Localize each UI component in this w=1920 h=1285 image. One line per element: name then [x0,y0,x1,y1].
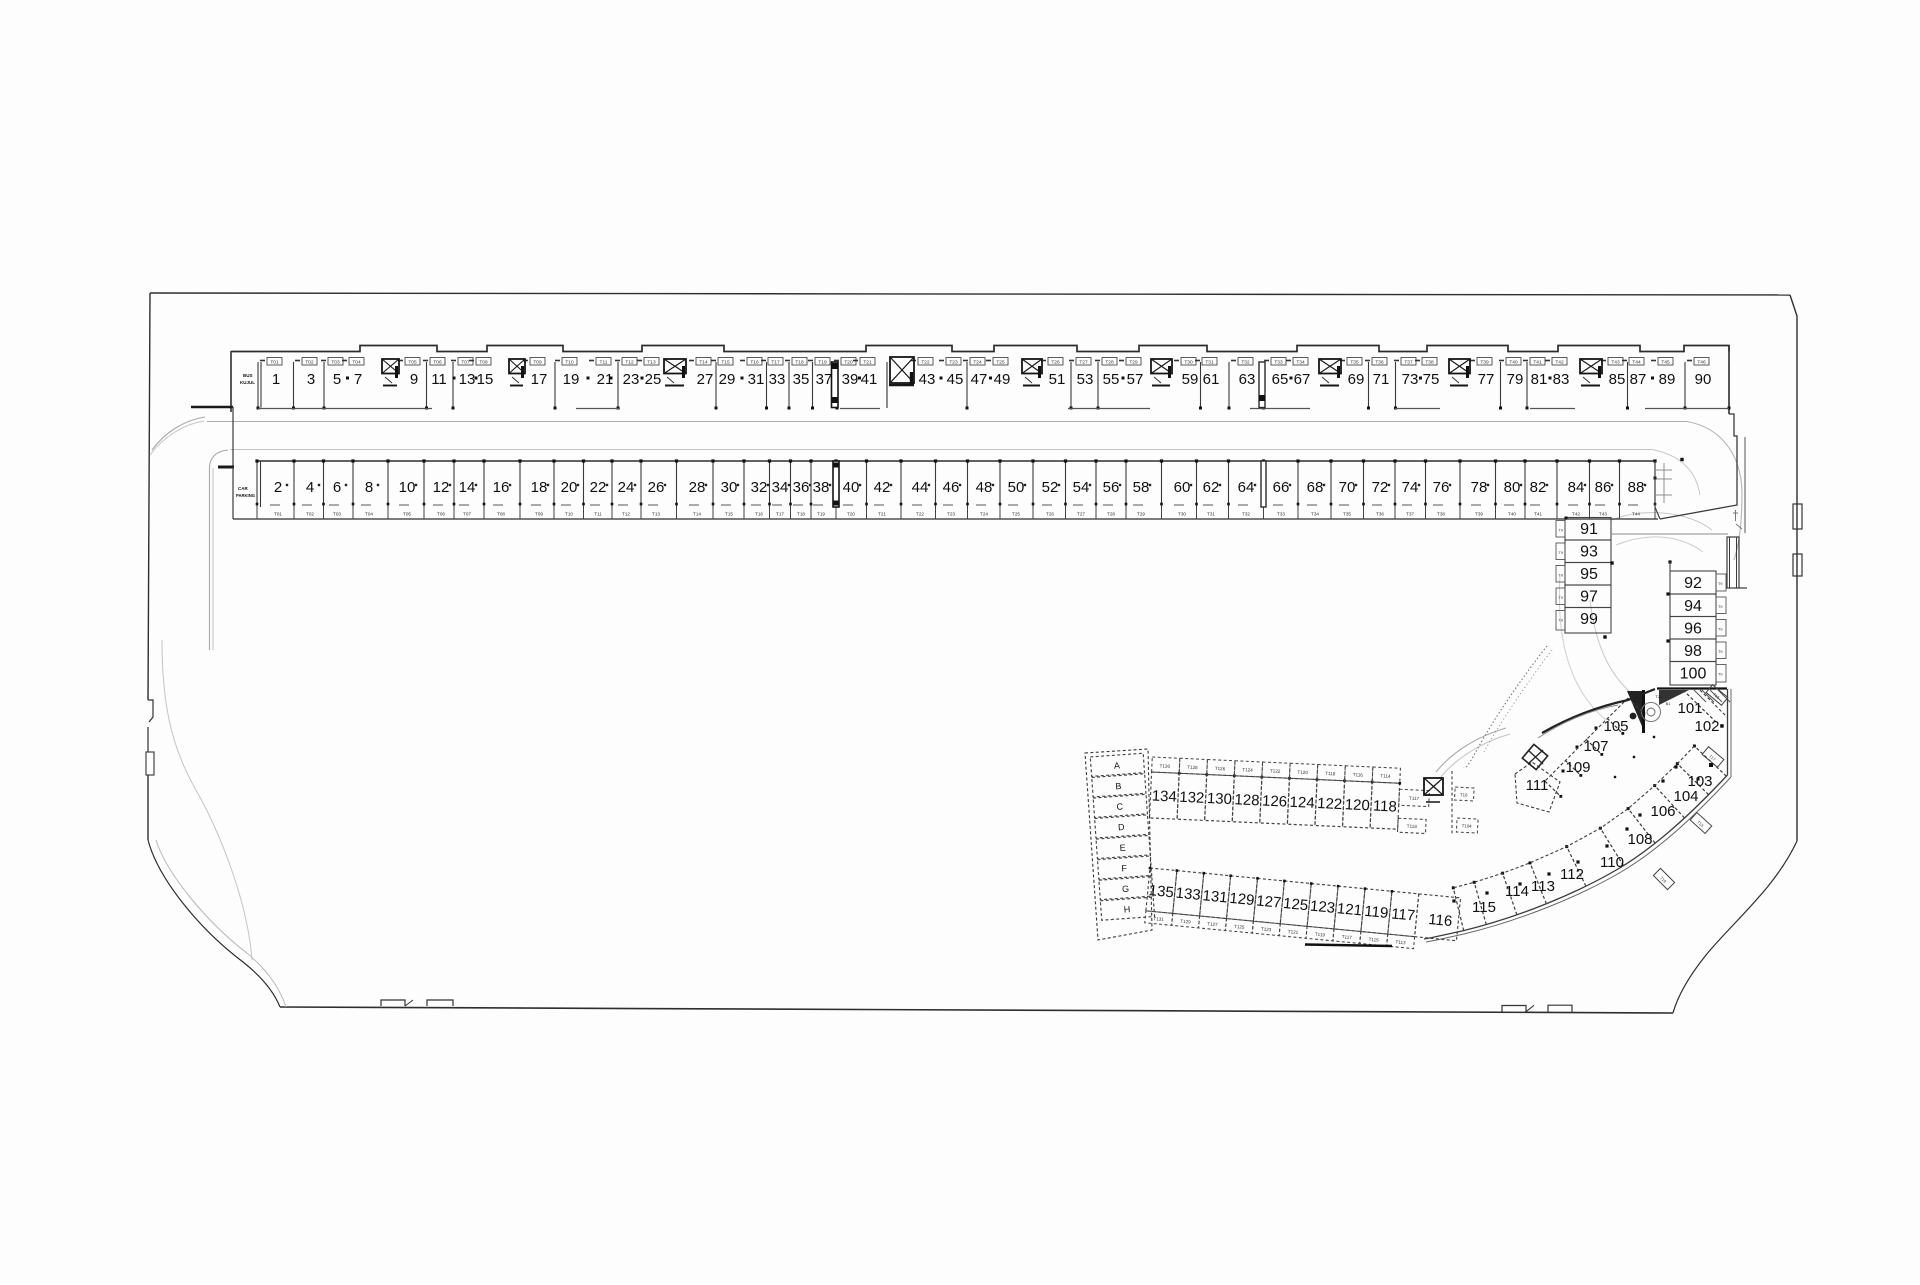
svg-text:30: 30 [721,479,738,496]
svg-text:112: 112 [1560,866,1584,883]
svg-text:96: 96 [1684,621,1702,638]
svg-text:22: 22 [590,479,607,496]
svg-text:65: 65 [1272,371,1289,388]
svg-text:T09: T09 [533,360,542,366]
svg-text:20: 20 [561,479,578,496]
svg-text:117: 117 [1390,905,1415,924]
svg-text:T40: T40 [1509,360,1518,366]
svg-text:T28: T28 [1107,512,1115,517]
svg-text:T03: T03 [333,512,341,517]
svg-text:T35: T35 [1343,512,1351,517]
svg-text:108: 108 [1627,831,1652,848]
svg-text:109: 109 [1565,759,1590,776]
svg-text:53: 53 [1077,371,1094,388]
svg-text:35: 35 [793,371,810,388]
svg-text:11: 11 [431,371,447,388]
svg-text:19: 19 [563,371,580,388]
svg-text:T43: T43 [1599,512,1607,517]
svg-text:T117: T117 [1409,796,1420,801]
svg-text:T06: T06 [437,512,445,517]
svg-text:T9: T9 [1559,529,1563,533]
svg-text:T39: T39 [1480,360,1489,366]
svg-text:94: 94 [1684,598,1702,615]
svg-text:T34: T34 [1296,360,1305,366]
svg-text:70: 70 [1339,479,1356,496]
svg-text:T28: T28 [1105,360,1114,366]
svg-text:59: 59 [1182,371,1199,388]
svg-text:T113: T113 [1395,939,1406,945]
svg-text:T37: T37 [1406,512,1414,517]
svg-text:T124: T124 [1242,767,1253,772]
svg-text:34: 34 [772,479,789,496]
svg-text:T116: T116 [1353,772,1364,777]
svg-text:68: 68 [1307,479,1324,496]
svg-text:T23: T23 [947,512,955,517]
svg-text:79: 79 [1507,371,1524,388]
svg-text:T45: T45 [1661,360,1670,366]
svg-text:26: 26 [648,479,665,496]
svg-text:74: 74 [1402,479,1419,496]
svg-text:48: 48 [976,479,993,496]
svg-text:44: 44 [912,479,929,496]
svg-text:T115: T115 [1368,937,1379,943]
svg-text:76: 76 [1433,479,1450,496]
svg-text:97: 97 [1580,589,1598,606]
svg-text:T122: T122 [1270,768,1281,773]
svg-text:88: 88 [1628,479,1645,496]
svg-text:T12: T12 [622,512,630,517]
svg-text:57: 57 [1127,371,1144,388]
svg-text:T114: T114 [1380,773,1391,778]
svg-text:T13: T13 [652,512,660,517]
svg-text:54: 54 [1073,479,1090,496]
svg-text:100: 100 [1680,666,1707,683]
svg-text:T32: T32 [1242,512,1250,517]
svg-text:90: 90 [1695,371,1712,388]
svg-text:4: 4 [306,479,314,496]
svg-text:T05: T05 [403,512,411,517]
svg-text:115: 115 [1472,899,1496,916]
svg-text:T29: T29 [1137,512,1145,517]
svg-text:T19: T19 [818,360,827,366]
svg-text:122: 122 [1317,795,1343,813]
svg-text:27: 27 [697,371,714,388]
svg-text:9: 9 [410,371,418,388]
svg-text:T9: T9 [1718,673,1722,677]
svg-text:T14: T14 [693,512,701,517]
svg-text:98: 98 [1684,643,1702,660]
svg-text:72: 72 [1372,479,1389,496]
svg-text:T04: T04 [365,512,373,517]
svg-text:T39: T39 [1475,512,1483,517]
svg-text:16: 16 [493,479,510,496]
svg-text:T37: T37 [1404,360,1413,366]
svg-text:47: 47 [971,371,988,388]
svg-text:CAR: CAR [238,486,248,491]
svg-text:T10: T10 [565,512,573,517]
svg-text:T130: T130 [1160,763,1171,768]
svg-text:T13: T13 [647,360,656,366]
svg-text:T04: T04 [352,360,361,366]
svg-text:1: 1 [272,371,280,388]
svg-text:T33: T33 [1274,360,1283,366]
svg-text:T25: T25 [1012,512,1020,517]
svg-text:135: 135 [1148,882,1175,901]
svg-text:95: 95 [1580,566,1598,583]
svg-text:T9: T9 [1718,628,1722,632]
svg-text:T26: T26 [1046,512,1054,517]
svg-text:102: 102 [1694,718,1719,735]
svg-text:36: 36 [793,479,810,496]
svg-text:41: 41 [861,371,878,388]
svg-text:B: B [1115,781,1122,791]
svg-text:58: 58 [1133,479,1150,496]
svg-text:17: 17 [531,371,548,388]
svg-text:69: 69 [1348,371,1365,388]
svg-text:T31: T31 [1205,360,1214,366]
svg-text:24: 24 [618,479,635,496]
svg-text:37: 37 [816,371,833,388]
svg-text:B1: B1 [1666,702,1671,706]
svg-text:86: 86 [1595,479,1612,496]
svg-text:T03: T03 [331,360,340,366]
svg-text:13: 13 [459,371,476,388]
svg-text:T35: T35 [1350,360,1359,366]
svg-text:T07: T07 [461,360,470,366]
svg-text:91: 91 [1580,521,1598,538]
svg-text:116: 116 [1428,911,1453,930]
svg-text:T44: T44 [1632,512,1640,517]
svg-text:61: 61 [1203,371,1220,388]
svg-text:62: 62 [1203,479,1220,496]
svg-text:T43: T43 [1611,360,1620,366]
svg-text:63: 63 [1239,371,1256,388]
svg-text:T20: T20 [844,360,853,366]
svg-text:T11: T11 [600,360,608,366]
svg-text:80: 80 [1504,479,1521,496]
svg-text:127: 127 [1256,892,1283,911]
svg-text:T18: T18 [797,512,805,517]
svg-text:64: 64 [1238,479,1255,496]
svg-text:T21: T21 [878,512,886,517]
svg-text:T104: T104 [1462,823,1473,829]
svg-text:T41: T41 [1534,512,1542,517]
svg-text:T34: T34 [1311,512,1319,517]
svg-text:T12: T12 [625,360,634,366]
svg-text:121: 121 [1336,900,1363,919]
svg-text:40: 40 [843,479,860,496]
svg-text:T9: T9 [1559,596,1563,600]
svg-text:14: 14 [459,479,476,496]
svg-text:18: 18 [531,479,548,496]
svg-text:23: 23 [623,371,640,388]
svg-text:T08: T08 [479,360,488,366]
svg-text:15: 15 [477,371,494,388]
svg-text:T16: T16 [1460,792,1468,797]
svg-text:T129: T129 [1180,919,1191,925]
svg-text:107: 107 [1583,738,1608,755]
svg-text:56: 56 [1103,479,1120,496]
svg-text:89: 89 [1659,371,1676,388]
svg-text:132: 132 [1179,789,1205,807]
svg-text:T9: T9 [1718,582,1722,586]
svg-text:73: 73 [1402,371,1419,388]
svg-text:60: 60 [1174,479,1191,496]
svg-text:83: 83 [1553,371,1570,388]
svg-text:32: 32 [751,479,768,496]
svg-text:120: 120 [1344,796,1370,814]
svg-text:BUS: BUS [243,373,253,378]
svg-text:T38: T38 [1437,512,1445,517]
svg-text:T05: T05 [408,360,417,366]
svg-text:T131: T131 [1153,916,1164,922]
svg-text:T26: T26 [1051,360,1060,366]
svg-text:66: 66 [1273,479,1290,496]
svg-text:42: 42 [874,479,891,496]
svg-text:5: 5 [333,371,341,388]
svg-text:T18: T18 [795,360,804,366]
svg-text:T11: T11 [594,512,602,517]
svg-text:H: H [1123,904,1130,914]
svg-text:126: 126 [1262,793,1288,811]
svg-text:119: 119 [1364,903,1389,922]
svg-text:T42: T42 [1572,512,1580,517]
svg-text:T117: T117 [1341,934,1352,940]
svg-text:T21: T21 [863,360,872,366]
svg-text:6: 6 [333,479,341,496]
svg-text:T08: T08 [497,512,505,517]
svg-text:46: 46 [943,479,960,496]
svg-text:105: 105 [1603,718,1628,735]
svg-text:T9: T9 [1559,574,1563,578]
svg-text:T118: T118 [1407,824,1418,829]
svg-text:T125: T125 [1234,924,1245,930]
svg-text:T42: T42 [1555,360,1564,366]
svg-text:52: 52 [1042,479,1059,496]
svg-text:75: 75 [1423,371,1440,388]
svg-text:T128: T128 [1187,765,1198,770]
svg-text:123: 123 [1309,898,1336,917]
svg-text:101: 101 [1677,700,1702,717]
svg-text:T24: T24 [980,512,988,517]
svg-text:114: 114 [1505,883,1529,900]
svg-text:T29: T29 [1129,360,1138,366]
svg-text:T120: T120 [1297,770,1308,775]
svg-text:67: 67 [1294,371,1311,388]
svg-text:T31: T31 [1207,512,1215,517]
svg-text:T02: T02 [305,360,314,366]
svg-text:C: C [1116,801,1124,811]
svg-text:T9: T9 [1718,605,1722,609]
svg-text:T15: T15 [725,512,733,517]
svg-text:124: 124 [1289,794,1315,812]
svg-text:128: 128 [1234,791,1260,809]
svg-text:3: 3 [307,371,315,388]
svg-text:125: 125 [1282,895,1309,914]
svg-text:T123: T123 [1261,926,1272,932]
svg-text:A: A [1114,760,1121,770]
svg-text:T121: T121 [1288,929,1299,935]
svg-text:T30: T30 [1184,360,1193,366]
svg-text:T32: T32 [1241,360,1250,366]
svg-text:2: 2 [274,479,282,496]
svg-text:111: 111 [1526,777,1549,794]
svg-text:KUJUL: KUJUL [240,380,255,385]
svg-text:130: 130 [1207,790,1233,808]
svg-text:T23: T23 [949,360,958,366]
svg-text:50: 50 [1008,479,1025,496]
svg-text:93: 93 [1580,544,1598,561]
svg-text:31: 31 [748,371,765,388]
svg-text:129: 129 [1229,890,1256,909]
svg-text:T36: T36 [1376,512,1384,517]
svg-text:134: 134 [1151,788,1177,806]
svg-text:33: 33 [769,371,786,388]
svg-text:T119: T119 [1315,932,1326,938]
svg-text:82: 82 [1530,479,1547,496]
svg-text:T01: T01 [270,360,279,366]
svg-text:T07: T07 [463,512,471,517]
svg-text:T27: T27 [1077,512,1085,517]
svg-text:43: 43 [919,371,936,388]
svg-text:T16: T16 [755,512,763,517]
svg-text:T14: T14 [699,360,708,366]
svg-text:T9: T9 [1559,619,1563,623]
svg-text:49: 49 [994,371,1011,388]
svg-text:T16: T16 [750,360,759,366]
svg-text:T9: T9 [1559,551,1563,555]
svg-text:39: 39 [842,371,859,388]
svg-text:G: G [1122,884,1130,894]
svg-text:77: 77 [1478,371,1495,388]
svg-text:99: 99 [1580,611,1598,628]
svg-text:T06: T06 [433,360,442,366]
svg-text:T40: T40 [1508,512,1516,517]
svg-text:71: 71 [1373,371,1390,388]
svg-text:28: 28 [689,479,706,496]
svg-text:T02: T02 [306,512,314,517]
svg-text:110: 110 [1600,854,1624,871]
svg-text:133: 133 [1175,885,1202,904]
svg-text:T118: T118 [1325,771,1336,776]
svg-text:106: 106 [1650,803,1675,820]
svg-text:10: 10 [399,479,416,496]
svg-text:T46: T46 [1697,360,1706,366]
svg-text:78: 78 [1471,479,1488,496]
svg-text:51: 51 [1049,371,1066,388]
svg-text:T17: T17 [776,512,784,517]
svg-text:92: 92 [1684,575,1702,592]
svg-text:T01: T01 [274,512,282,517]
svg-text:113: 113 [1531,878,1555,895]
svg-text:T15: T15 [721,360,730,366]
svg-text:D: D [1118,822,1126,832]
svg-text:84: 84 [1568,479,1585,496]
svg-text:81: 81 [1531,371,1548,388]
svg-text:T21: T21 [1656,694,1664,699]
svg-text:T44: T44 [1632,360,1641,366]
svg-text:T27: T27 [1079,360,1088,366]
svg-text:104: 104 [1673,788,1698,805]
svg-text:T20: T20 [847,512,855,517]
svg-text:T36: T36 [1375,360,1384,366]
svg-text:E: E [1119,843,1126,853]
svg-text:T33: T33 [1277,512,1285,517]
svg-text:8: 8 [365,479,373,496]
svg-text:T38: T38 [1425,360,1434,366]
svg-text:T25: T25 [996,360,1005,366]
svg-text:T24: T24 [973,360,982,366]
svg-text:25: 25 [645,371,662,388]
svg-text:12: 12 [433,479,450,496]
svg-text:29: 29 [719,371,736,388]
svg-text:T22: T22 [916,512,924,517]
svg-text:T9: T9 [1718,650,1722,654]
svg-text:131: 131 [1202,887,1229,906]
svg-text:T22: T22 [921,360,930,366]
svg-text:55: 55 [1103,371,1120,388]
svg-text:118: 118 [1373,798,1398,816]
svg-text:87: 87 [1630,371,1647,388]
svg-text:T10: T10 [565,360,574,366]
svg-text:T30: T30 [1178,512,1186,517]
svg-text:85: 85 [1609,371,1626,388]
svg-text:7: 7 [354,371,362,388]
svg-text:T126: T126 [1215,766,1226,771]
svg-text:T17: T17 [771,360,780,366]
svg-text:T41: T41 [1533,360,1542,366]
svg-text:T127: T127 [1207,921,1218,927]
svg-text:T09: T09 [535,512,543,517]
svg-text:38: 38 [813,479,830,496]
svg-text:45: 45 [947,371,964,388]
svg-text:T19: T19 [817,512,825,517]
svg-text:PARKING: PARKING [236,493,255,498]
